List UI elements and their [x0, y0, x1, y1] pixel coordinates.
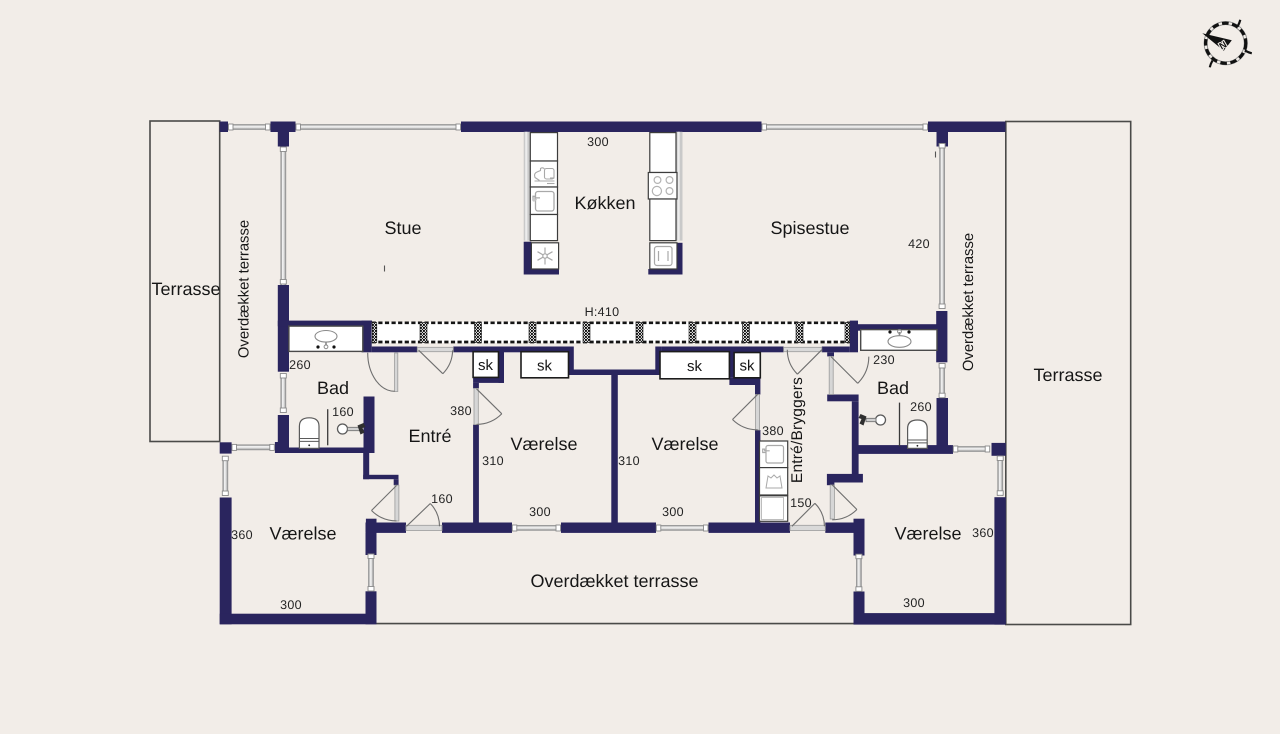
- svg-text:Værelse: Værelse: [894, 524, 961, 544]
- svg-text:Køkken: Køkken: [574, 193, 635, 213]
- svg-text:Bad: Bad: [877, 378, 909, 398]
- svg-text:Overdækket terrasse: Overdækket terrasse: [961, 233, 977, 371]
- svg-text:230: 230: [873, 353, 895, 367]
- svg-text:sk: sk: [537, 358, 553, 375]
- svg-text:310: 310: [618, 454, 640, 468]
- svg-text:sk: sk: [740, 358, 756, 375]
- svg-text:Stue: Stue: [384, 218, 421, 238]
- svg-text:300: 300: [529, 505, 551, 519]
- svg-text:380: 380: [762, 424, 784, 438]
- svg-text:420: 420: [908, 237, 930, 251]
- svg-text:160: 160: [332, 405, 354, 419]
- svg-text:Værelse: Værelse: [510, 434, 577, 454]
- svg-text:360: 360: [231, 528, 253, 542]
- svg-text:Entré: Entré: [408, 426, 451, 446]
- svg-text:360: 360: [972, 526, 994, 540]
- svg-text:260: 260: [289, 358, 311, 372]
- svg-text:150: 150: [790, 496, 812, 510]
- svg-text:Værelse: Værelse: [651, 434, 718, 454]
- svg-text:Terrasse: Terrasse: [1033, 365, 1102, 385]
- svg-text:300: 300: [280, 598, 302, 612]
- svg-text:sk: sk: [478, 357, 494, 374]
- svg-text:H:410: H:410: [585, 305, 620, 319]
- svg-text:sk: sk: [687, 358, 703, 375]
- svg-text:380: 380: [450, 404, 472, 418]
- svg-text:Bad: Bad: [317, 378, 349, 398]
- svg-text:300: 300: [587, 135, 609, 149]
- svg-text:Entré/Bryggers: Entré/Bryggers: [789, 377, 806, 483]
- svg-text:260: 260: [910, 400, 932, 414]
- svg-text:310: 310: [482, 454, 504, 468]
- svg-text:Spisestue: Spisestue: [770, 218, 849, 238]
- svg-text:300: 300: [903, 596, 925, 610]
- svg-text:Værelse: Værelse: [269, 524, 336, 544]
- svg-text:Terrasse: Terrasse: [151, 279, 220, 299]
- svg-text:Overdækket terrasse: Overdækket terrasse: [530, 571, 698, 591]
- svg-text:300: 300: [662, 505, 684, 519]
- svg-text:Overdækket terrasse: Overdækket terrasse: [237, 220, 253, 358]
- svg-text:160: 160: [431, 492, 453, 506]
